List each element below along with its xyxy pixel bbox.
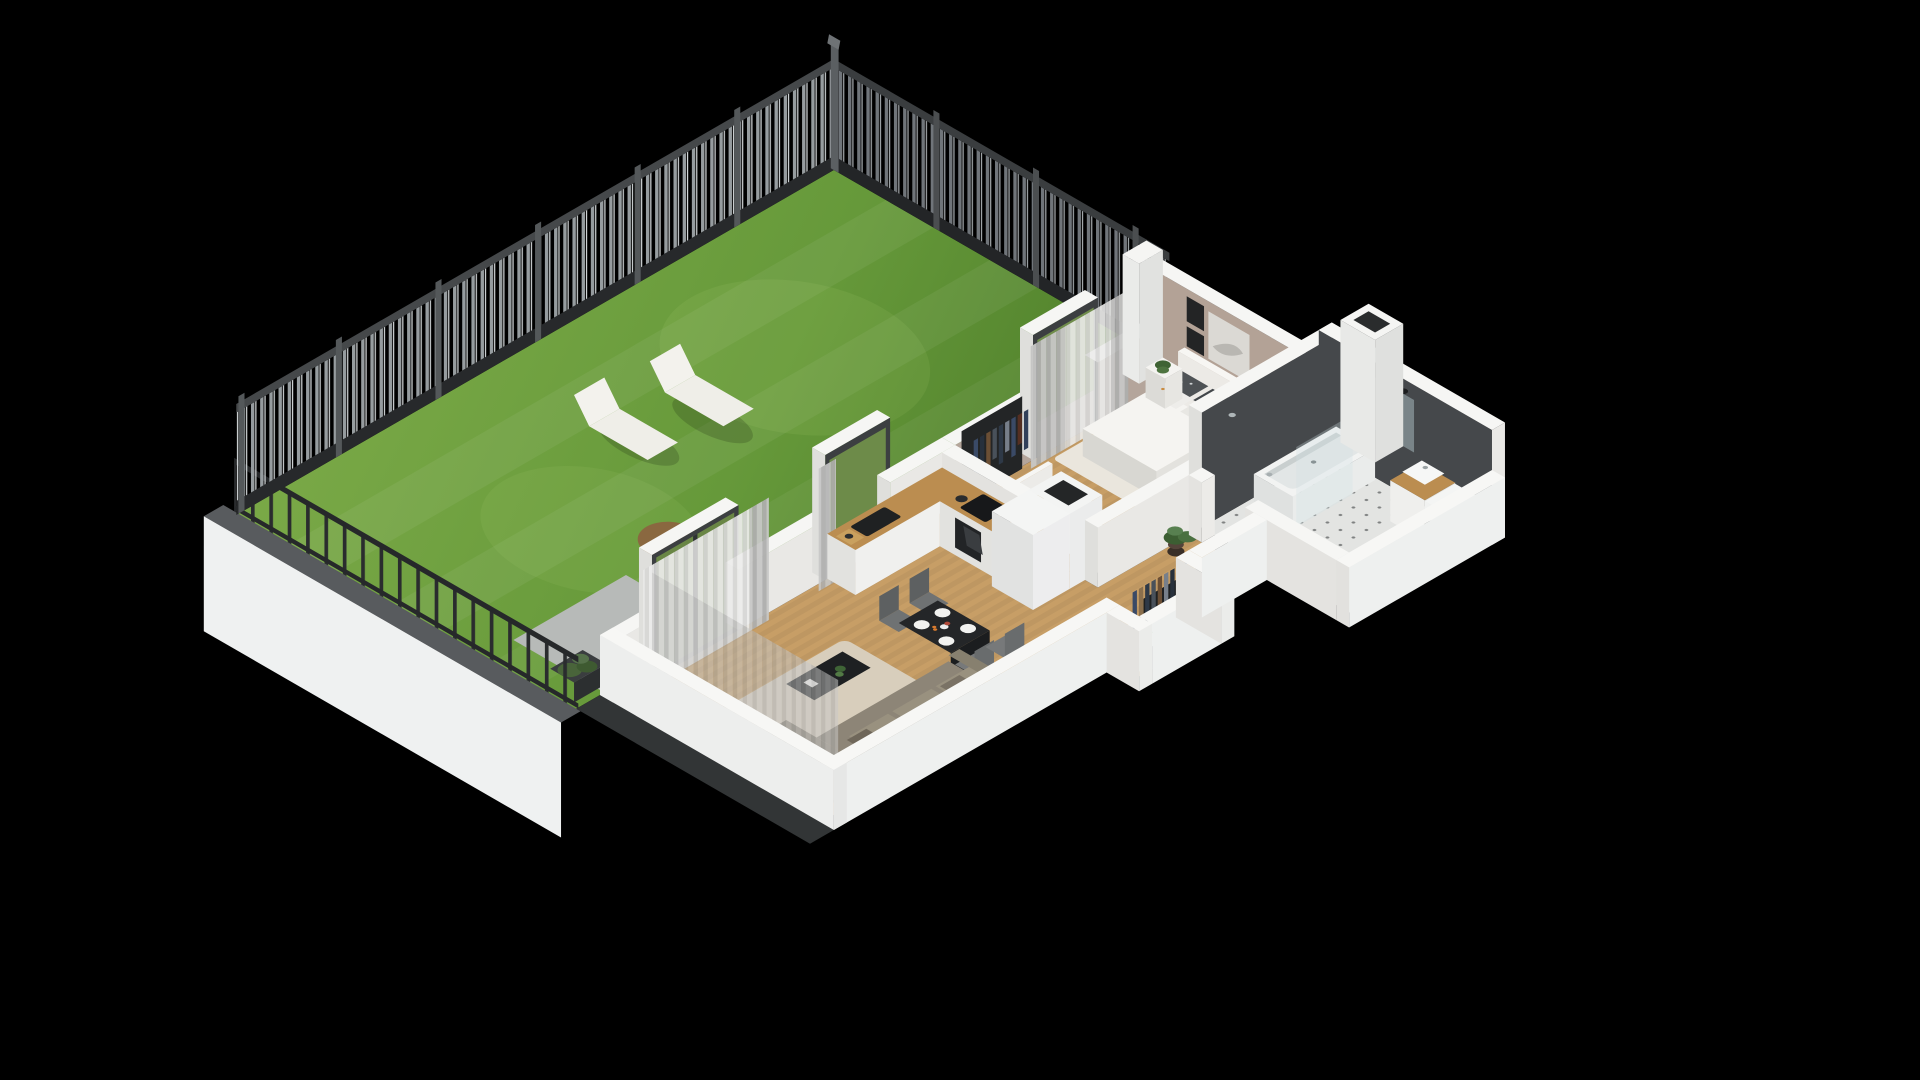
floorplan-render bbox=[0, 0, 1920, 1080]
isometric-scene bbox=[0, 0, 1920, 1080]
